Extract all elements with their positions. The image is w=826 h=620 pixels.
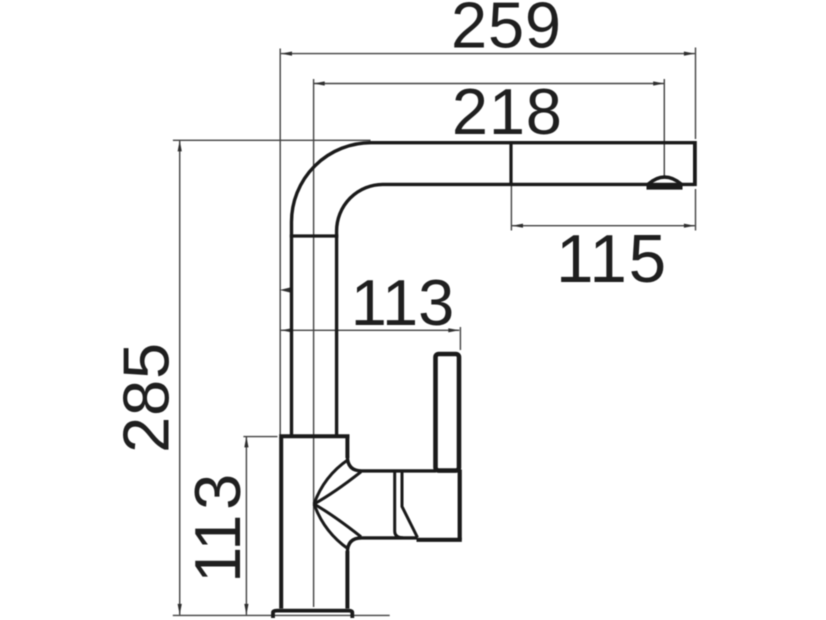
svg-text:259: 259: [451, 0, 562, 62]
svg-text:113: 113: [181, 473, 254, 583]
svg-text:115: 115: [556, 222, 667, 297]
svg-text:218: 218: [452, 75, 563, 148]
svg-text:113: 113: [351, 266, 455, 339]
svg-text:285: 285: [110, 342, 183, 453]
